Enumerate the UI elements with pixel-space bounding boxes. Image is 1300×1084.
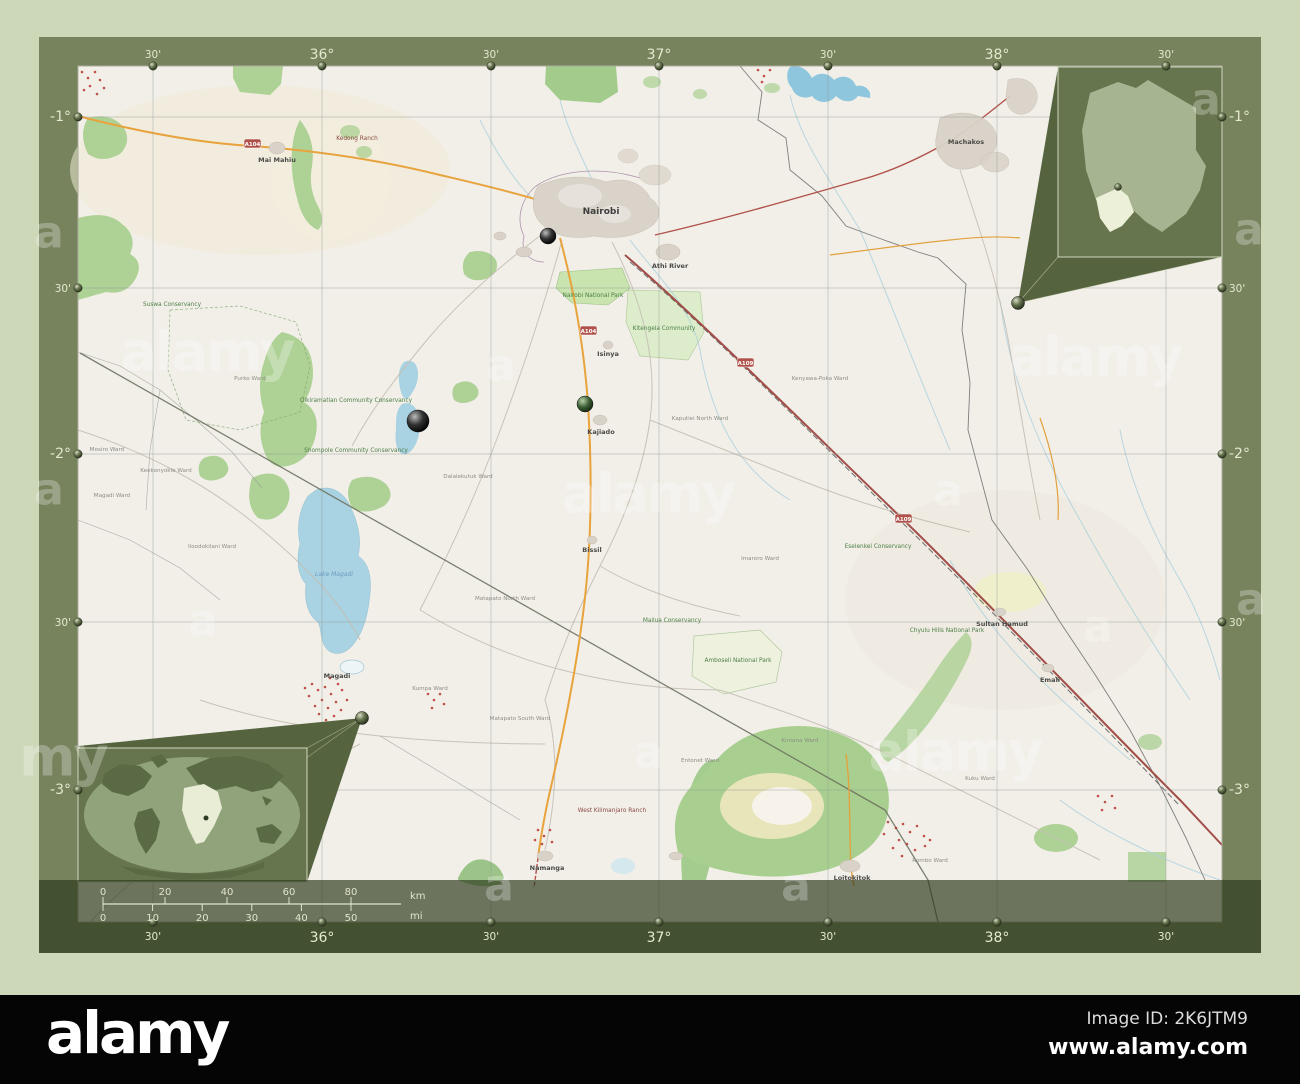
svg-text:30: 30 [245,913,258,924]
svg-text:30': 30' [820,931,836,943]
svg-text:30': 30' [1158,49,1174,61]
svg-text:-3°: -3° [50,782,71,798]
svg-text:10: 10 [146,913,159,924]
label-ward: Kumpa Ward [412,686,448,692]
label-sultan-hamud: Sultan Hamud [976,620,1028,628]
svg-text:0: 0 [100,913,106,924]
alamy-caption-bar: alamy Image ID: 2K6JTM9 www.alamy.com [0,995,1300,1084]
label-ward: Kaputiei North Ward [672,416,729,422]
label-olkiramatian: Olkiramatian Community Conservancy [300,398,413,404]
marker-callout-tip-sw [356,712,369,725]
label-ward: Imaroro Ward [741,556,779,562]
marker-major-town [407,410,429,432]
kajiado-marker [1115,184,1122,191]
svg-text:50: 50 [345,913,358,924]
svg-text:30': 30' [1229,617,1245,629]
label-suswa: Suswa Conservancy [143,302,202,308]
label-magadi: Magadi [324,672,351,680]
label-nnp: Nairobi National Park [563,293,625,299]
svg-text:20: 20 [196,913,209,924]
svg-text:-1°: -1° [50,109,71,125]
svg-text:30': 30' [55,617,71,629]
svg-text:-2°: -2° [1229,446,1250,462]
svg-text:37°: 37° [647,930,672,946]
alamy-url-text: www.alamy.com [1048,1035,1248,1060]
svg-text:-2°: -2° [50,446,71,462]
scale-km-unit: km [410,891,426,902]
conservancy-area [626,290,704,360]
svg-text:80: 80 [345,887,358,898]
map-figure: A104 A104 A109 A109 Nairobi Machakos Ath… [0,0,1300,1084]
marker-kajiado-town [577,396,593,412]
label-isinya: Isinya [597,350,619,358]
svg-text:30': 30' [483,49,499,61]
svg-text:38°: 38° [985,47,1010,63]
label-amboseli: Amboseli National Park [704,658,772,664]
shield-a109: A109 [896,517,912,523]
label-ward: Rombo Ward [912,858,948,864]
label-ward: Magadi Ward [94,493,131,499]
label-bissil: Bissil [582,546,601,554]
shield-a104-2: A104 [581,329,597,335]
svg-text:30': 30' [55,283,71,295]
label-namanga: Namanga [530,864,565,872]
shield-a109-2: A109 [738,361,754,367]
svg-text:37°: 37° [647,47,672,63]
svg-text:30': 30' [483,931,499,943]
label-lake-magadi: Lake Magadi [315,571,353,578]
label-ward: Iloodokilani Ward [188,544,236,550]
svg-text:30': 30' [820,49,836,61]
svg-text:0: 0 [100,887,106,898]
svg-text:30': 30' [145,931,161,943]
label-ward: Kenyawa-Poka Ward [792,376,849,382]
svg-text:38°: 38° [985,930,1010,946]
svg-text:-3°: -3° [1229,782,1250,798]
label-ward: Matapato South Ward [490,716,551,722]
stock-photo-page: { "alamy_bar": { "logo": "alamy", "image… [0,0,1300,1084]
svg-text:30': 30' [145,49,161,61]
label-machakos: Machakos [948,138,984,146]
svg-text:60: 60 [283,887,296,898]
label-athi-river: Athi River [652,262,689,270]
label-emali: Emali [1040,676,1060,684]
label-mai-mahiu: Mai Mahiu [258,156,296,164]
svg-text:-1°: -1° [1229,109,1250,125]
alamy-logo: alamy [46,999,227,1067]
label-ward: Kuku Ward [965,776,995,782]
label-kitengela: Kitengela Community [633,326,696,332]
svg-text:30': 30' [1229,283,1245,295]
marker-nairobi [540,228,556,244]
label-ward: Purko Ward [234,376,266,382]
shield-a104: A104 [245,142,261,148]
label-ward: Matapato North Ward [475,596,535,602]
label-ward: Mosiro Ward [90,447,125,453]
kenya-dot [204,816,209,821]
label-chyulu: Chyulu Hills National Park [910,628,985,634]
svg-text:36°: 36° [310,47,335,63]
label-ward: Keekonyokie Ward [140,468,192,474]
label-shompole: Shompole Community Conservancy [304,448,408,454]
label-ward: Entonet Ward [681,758,719,764]
svg-text:40: 40 [221,887,234,898]
marker-callout-tip-ne [1012,297,1025,310]
label-ward: Dalalekutuk Ward [443,474,493,480]
svg-text:40: 40 [295,913,308,924]
image-id-text: Image ID: 2K6JTM9 [1048,1009,1248,1029]
svg-text:36°: 36° [310,930,335,946]
svg-text:30': 30' [1158,931,1174,943]
label-kedong: Kedong Ranch [336,136,378,142]
svg-text:20: 20 [159,887,172,898]
label-nairobi: Nairobi [583,207,620,217]
label-mailua: Mailua Conservancy [643,618,702,624]
label-west-kilimanjaro: West Kilimanjaro Ranch [578,808,647,814]
label-ward: Kimana Ward [781,738,819,744]
label-eselenkei: Eselenkei Conservancy [845,544,912,550]
scale-mi-unit: mi [410,911,423,922]
label-kajiado: Kajiado [587,428,615,436]
